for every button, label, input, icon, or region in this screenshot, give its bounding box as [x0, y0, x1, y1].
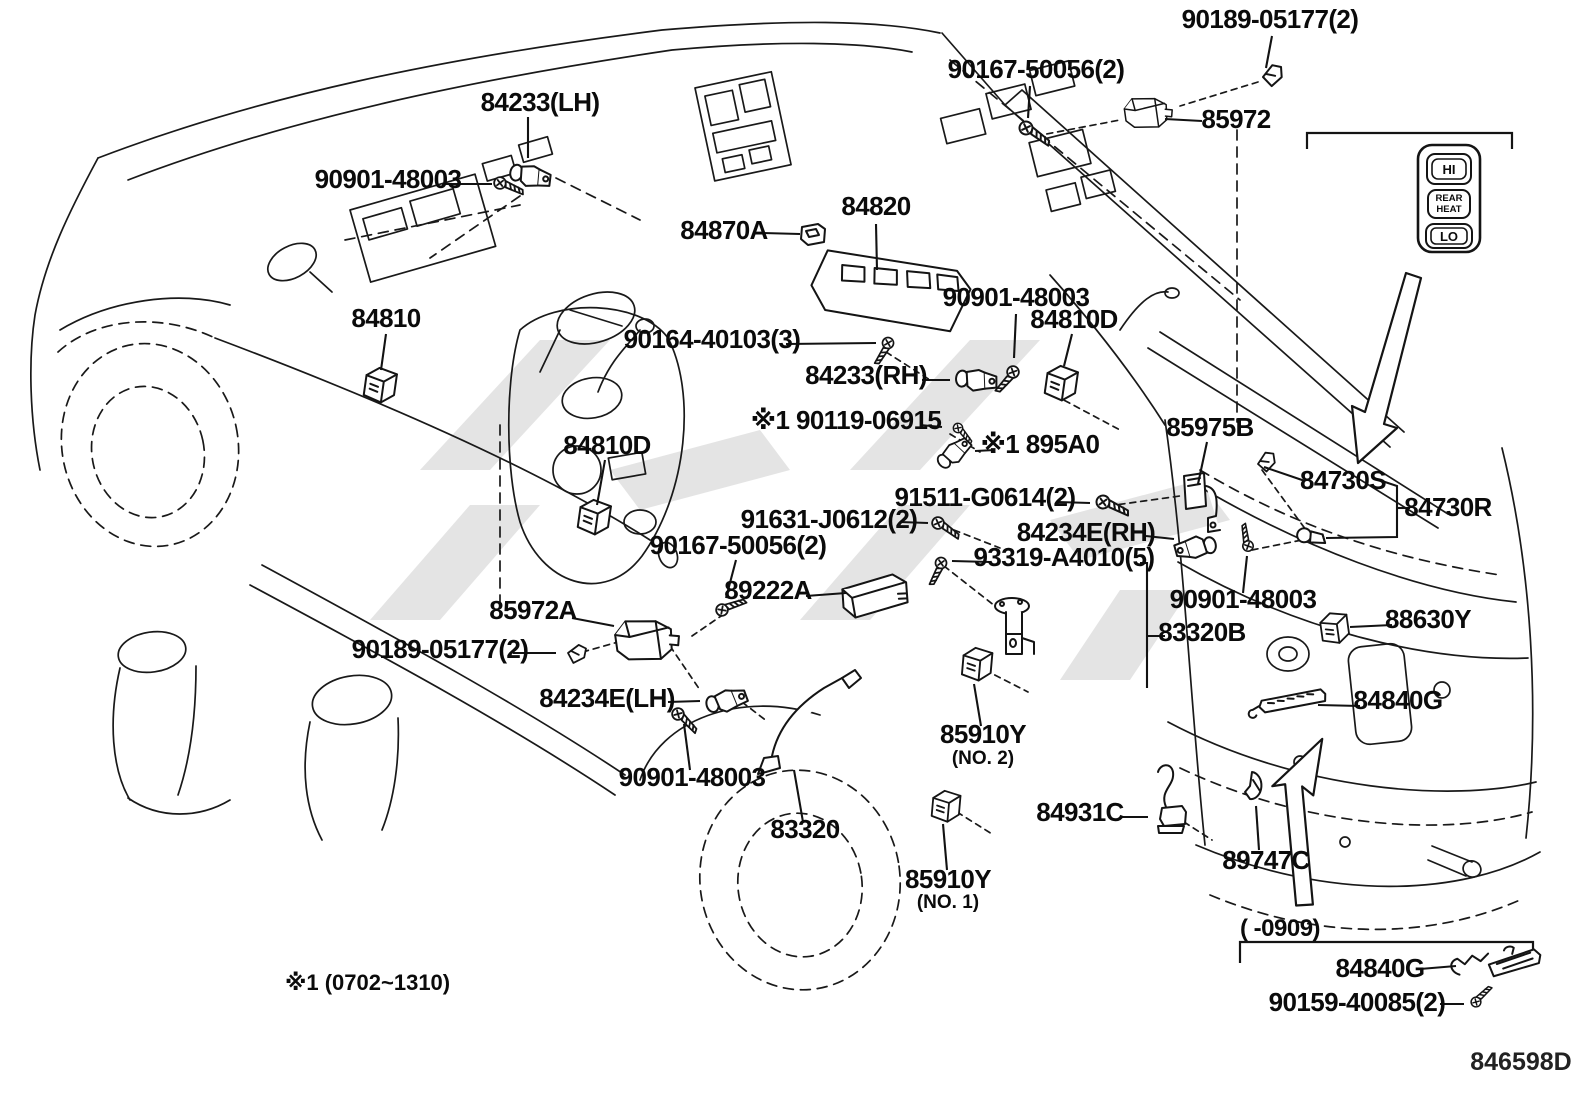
part-number-label: 85910Y — [940, 719, 1026, 749]
relay-part-icon — [931, 790, 961, 823]
screw-part-icon — [929, 556, 947, 586]
part-number-label: 84810D — [563, 430, 650, 460]
hi-button-label: HI — [1443, 162, 1456, 177]
part-number-label: 84820 — [841, 191, 910, 221]
leader-line — [381, 334, 386, 370]
part-label-group: ※1 90119-06915 — [751, 405, 942, 435]
part-label-group: 84810D — [1030, 304, 1117, 366]
part-number-sublabel: (NO. 2) — [952, 748, 1014, 769]
part-number-label: 83320B — [1158, 617, 1245, 647]
part-number-label: 90167-50056(2) — [948, 54, 1125, 84]
part-number-label: 90164-40103(3) — [624, 324, 801, 354]
part-number-label: 84233(RH) — [805, 360, 927, 390]
part-label-group: 85910Y(NO. 1) — [905, 824, 991, 913]
part-label-group: 84870A — [680, 215, 800, 245]
part-number-label: 90189-05177(2) — [1182, 4, 1359, 34]
relay-part-icon — [962, 647, 993, 682]
parts-diagram-page: HI REAR HEAT LO ( -0909) ※1 (0702~1310) … — [0, 0, 1592, 1099]
lo-button-label: LO — [1440, 229, 1458, 244]
footnote: ※1 (0702~1310) — [285, 970, 450, 995]
part-number-label: 84870A — [680, 215, 768, 245]
part-label-group: 91511-G0614(2) — [895, 482, 1090, 512]
leader-line — [1256, 806, 1259, 850]
part-label-group: ※1 895A0 — [975, 429, 1100, 459]
diagram-code: 846598D — [1470, 1048, 1571, 1076]
part-number-label: 85975B — [1166, 412, 1253, 442]
clip-part-icon — [568, 645, 586, 663]
part-number-label: 90167-50056(2) — [650, 530, 827, 560]
screw-part-icon — [1234, 523, 1257, 553]
leader-line — [1264, 467, 1305, 481]
part-label-group: 90164-40103(3) — [624, 324, 876, 354]
sswitch-part-icon — [801, 224, 825, 245]
part-label-group: 90189-05177(2) — [1182, 4, 1359, 68]
part-label-group: 84233(LH) — [481, 87, 600, 158]
part-label-group: 90159-40085(2) — [1269, 987, 1464, 1017]
part-number-label: 90901-48003 — [315, 164, 462, 194]
part-label-group: 84730S — [1264, 465, 1397, 538]
part-label-group: 88630Y — [1350, 604, 1471, 634]
screw-part-icon — [1469, 982, 1492, 1010]
inset-bracket — [1307, 133, 1512, 149]
arrow-down-icon — [1352, 273, 1421, 463]
part-label-group: 83320 — [770, 770, 839, 844]
part-label-group: 85910Y(NO. 2) — [940, 684, 1026, 769]
relay-part-icon — [577, 498, 611, 536]
grommet-part-icon — [1245, 772, 1261, 799]
relay-part-icon — [1044, 364, 1078, 402]
part-number-label: 84730R — [1404, 492, 1492, 522]
part-number-label: ※1 895A0 — [981, 429, 1100, 459]
camera-part-icon — [1158, 765, 1186, 833]
part-number-label: 84234E(LH) — [539, 683, 675, 713]
part-number-label: 90901-48003 — [619, 762, 766, 792]
part-number-label: 90189-05177(2) — [352, 634, 529, 664]
hingep-part-icon — [1450, 944, 1541, 979]
sender-part-icon — [995, 598, 1034, 654]
part-label-group: 90901-48003 — [619, 724, 766, 792]
leader-line — [1028, 86, 1030, 118]
part-label-group: 84810 — [351, 303, 420, 370]
part-label-group: 90167-50056(2) — [948, 54, 1125, 118]
part-number-label: 84931C — [1036, 797, 1124, 827]
part-number-sublabel: (NO. 1) — [917, 892, 979, 913]
part-number-label: 85972 — [1201, 104, 1270, 134]
part-number-label: 85910Y — [905, 864, 991, 894]
sensor-part-icon — [704, 685, 749, 716]
part-label-group: 84840G — [1318, 685, 1442, 715]
part-number-label: 91511-G0614(2) — [895, 482, 1076, 512]
part-number-label: ※1 90119-06915 — [751, 405, 942, 435]
part-number-label: 85972A — [489, 595, 577, 625]
part-number-label: 90159-40085(2) — [1269, 987, 1446, 1017]
part-number-label: 90901-48003 — [1170, 584, 1317, 614]
part-label-group: 90901-48003 — [1170, 556, 1317, 614]
part-number-label: 89747C — [1222, 845, 1310, 875]
part-number-label: 84730S — [1300, 465, 1386, 495]
part-number-label: 89222A — [724, 575, 812, 605]
leader-line — [572, 618, 614, 626]
part-label-group: 90901-48003 — [315, 164, 492, 194]
clip-part-icon — [1261, 63, 1285, 87]
part-label-group: 84931C — [1036, 797, 1148, 827]
rod-part-icon — [758, 670, 861, 774]
part-number-label: 88630Y — [1385, 604, 1471, 634]
part-label-group: 85972 — [1165, 104, 1271, 134]
leader-line — [1266, 36, 1272, 68]
relay-part-icon — [1319, 611, 1350, 645]
part-number-label: 93319-A4010(5) — [974, 542, 1155, 572]
part-number-label: 84840G — [1354, 685, 1443, 715]
part-number-label: 84233(LH) — [481, 87, 600, 117]
part-label-group: 83320B — [1148, 617, 1246, 647]
part-number-label: 84840G — [1336, 953, 1425, 983]
part-number-label: 84810D — [1030, 304, 1117, 334]
variant-date-range: ( -0909) — [1240, 915, 1320, 942]
rear-label: REAR — [1436, 193, 1463, 204]
part-number-label: 84810 — [351, 303, 420, 333]
heat-label: HEAT — [1436, 204, 1461, 215]
part-label-group: 85975B — [1166, 412, 1253, 484]
part-label-group: 90189-05177(2) — [352, 634, 556, 664]
leader-line — [763, 233, 800, 234]
rear-heat-switch-inset: HI REAR HEAT LO — [1307, 133, 1512, 252]
vehicle-parts-diagram: HI REAR HEAT LO ( -0909) ※1 (0702~1310) … — [0, 0, 1592, 1099]
actuator-part-icon — [1123, 93, 1174, 131]
leader-line — [876, 224, 877, 270]
part-label-group: 84840G — [1336, 953, 1456, 983]
part-label-group: 85972A — [489, 595, 614, 626]
leader-line — [1064, 334, 1072, 366]
busbar-part-icon — [1247, 689, 1327, 718]
part-label-group: 84730R — [1397, 492, 1493, 522]
part-number-label: 83320 — [770, 814, 839, 844]
leader-line — [1420, 966, 1456, 969]
sensor-part-icon — [1173, 533, 1217, 561]
actuator-part-icon — [613, 614, 681, 664]
leader-line — [1165, 119, 1202, 121]
